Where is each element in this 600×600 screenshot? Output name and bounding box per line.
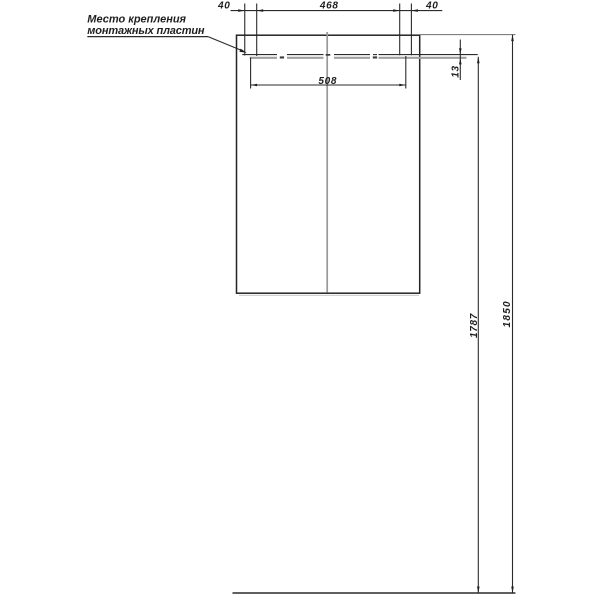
svg-text:13: 13 xyxy=(451,65,462,78)
svg-text:1787: 1787 xyxy=(469,313,480,338)
svg-text:Место крепления: Место крепления xyxy=(87,13,186,25)
svg-text:40: 40 xyxy=(425,1,439,12)
svg-text:508: 508 xyxy=(318,76,337,87)
svg-text:монтажных пластин: монтажных пластин xyxy=(87,25,205,37)
svg-text:40: 40 xyxy=(217,1,231,12)
svg-text:1850: 1850 xyxy=(502,300,513,327)
svg-text:468: 468 xyxy=(319,1,339,12)
